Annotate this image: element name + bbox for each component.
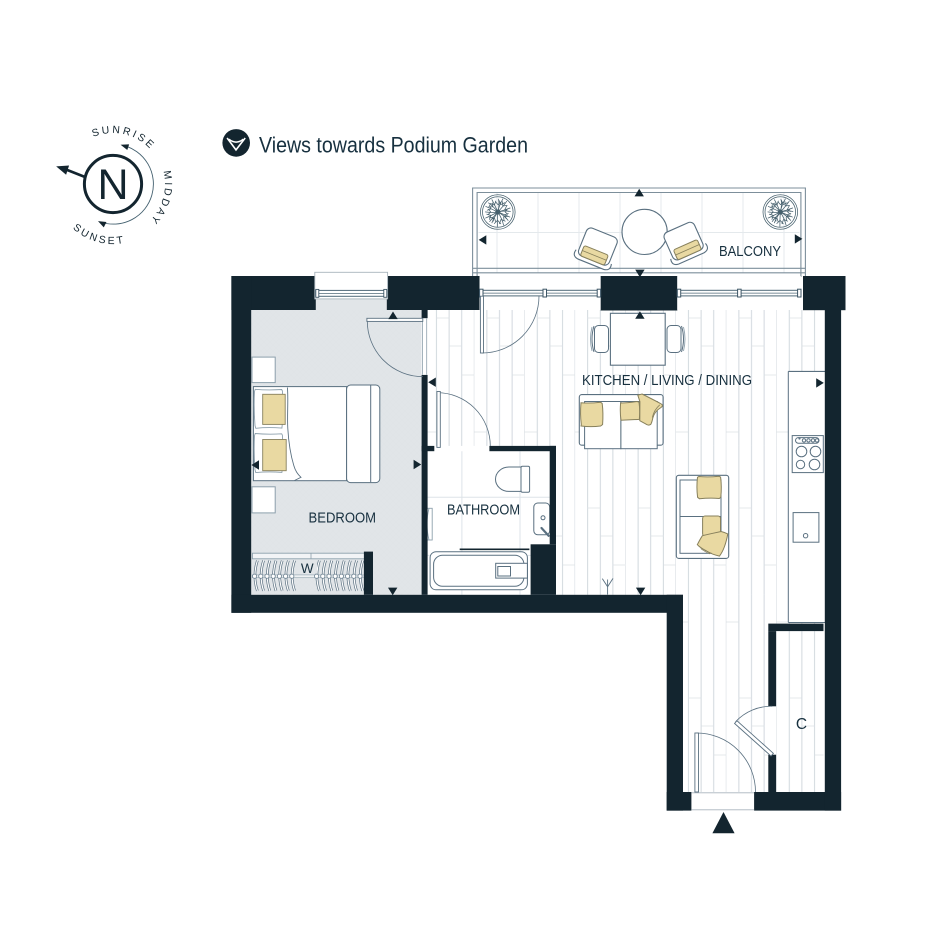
svg-text:BALCONY: BALCONY <box>719 244 781 260</box>
svg-text:C: C <box>796 716 807 733</box>
svg-text:BATHROOM: BATHROOM <box>447 503 520 519</box>
svg-text:KITCHEN / LIVING / DINING: KITCHEN / LIVING / DINING <box>582 372 752 389</box>
svg-text:W: W <box>301 561 314 576</box>
svg-text:N: N <box>97 161 128 209</box>
svg-text:BEDROOM: BEDROOM <box>309 510 377 527</box>
svg-text:Views towards Podium Garden: Views towards Podium Garden <box>259 132 528 157</box>
